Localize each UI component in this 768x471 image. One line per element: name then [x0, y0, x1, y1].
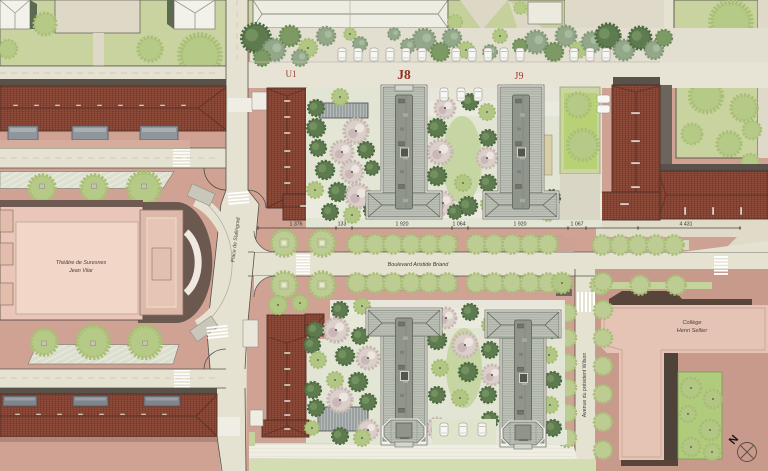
- svg-text:Avenue du président Wilson: Avenue du président Wilson: [582, 353, 588, 418]
- svg-text:4 431: 4 431: [680, 222, 693, 228]
- svg-text:1 064: 1 064: [453, 222, 466, 228]
- svg-text:1 376: 1 376: [290, 222, 303, 228]
- svg-text:U1: U1: [286, 69, 297, 79]
- svg-text:Boulevard Aristide Briand: Boulevard Aristide Briand: [388, 262, 450, 268]
- svg-text:133: 133: [338, 222, 347, 228]
- svg-text:Henri Sellier: Henri Sellier: [677, 328, 709, 334]
- svg-text:1 067: 1 067: [571, 222, 584, 228]
- svg-text:Théâtre de Suresnes: Théâtre de Suresnes: [56, 260, 107, 266]
- svg-text:J8: J8: [397, 67, 411, 82]
- svg-text:1 920: 1 920: [396, 222, 409, 228]
- svg-text:Jean Vilar: Jean Vilar: [68, 268, 93, 274]
- svg-text:1 920: 1 920: [514, 222, 527, 228]
- svg-text:Collège: Collège: [683, 320, 702, 326]
- svg-text:J9: J9: [515, 71, 524, 82]
